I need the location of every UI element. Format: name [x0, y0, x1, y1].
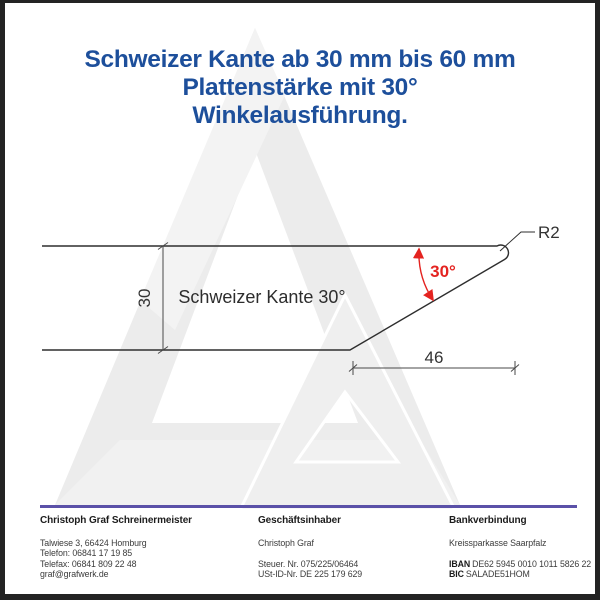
footer-bank-column: Bankverbindung Kreissparkasse Saarpfalz …: [449, 516, 599, 580]
footer-owner-heading: Geschäftsinhaber: [258, 516, 443, 527]
page-title: Schweizer Kante ab 30 mm bis 60 mm Platt…: [0, 46, 600, 130]
thickness-dim-label: 30: [135, 289, 154, 308]
title-line-2: Plattenstärke mit 30°: [0, 74, 600, 102]
footer-phone: Telefon: 06841 17 19 85: [40, 548, 245, 559]
footer-iban-line: IBANDE62 5945 0010 1011 5826 22: [449, 559, 599, 570]
title-line-3: Winkelausführung.: [0, 102, 600, 130]
title-line-1: Schweizer Kante ab 30 mm bis 60 mm: [0, 46, 600, 74]
iban-label: IBAN: [449, 559, 470, 569]
thickness-dimension: [158, 243, 168, 354]
footer-owner-name: Christoph Graf: [258, 538, 443, 549]
footer-bank-heading: Bankverbindung: [449, 516, 599, 527]
chamfer-width-dim-label: 46: [425, 348, 444, 367]
bic-value: SALADE51HOM: [466, 569, 530, 579]
footer-owner-column: Geschäftsinhaber Christoph Graf Steuer. …: [258, 516, 443, 580]
footer-company-heading: Christoph Graf Schreinermeister: [40, 516, 245, 527]
radius-leader-line: [500, 232, 535, 251]
profile-label: Schweizer Kante 30°: [178, 287, 345, 307]
footer-vat-id: USt-ID-Nr. DE 225 179 629: [258, 569, 443, 580]
footer-owner-spacer: [258, 548, 443, 559]
footer-divider-rule: [40, 505, 577, 508]
footer-bank-name: Kreissparkasse Saarpfalz: [449, 538, 599, 549]
data-sheet-page: { "title": { "line1": "Schweizer Kante a…: [0, 0, 600, 600]
footer-email: graf@grafwerk.de: [40, 569, 245, 580]
footer-bic-line: BICSALADE51HOM: [449, 569, 599, 580]
footer-address: Talwiese 3, 66424 Homburg: [40, 538, 245, 549]
footer-bank-spacer: [449, 548, 599, 559]
footer-company-column: Christoph Graf Schreinermeister Talwiese…: [40, 516, 245, 580]
footer-tax-number: Steuer. Nr. 075/225/06464: [258, 559, 443, 570]
angle-label: 30°: [430, 262, 456, 281]
iban-value: DE62 5945 0010 1011 5826 22: [472, 559, 591, 569]
bic-label: BIC: [449, 569, 464, 579]
radius-label: R2: [538, 223, 560, 242]
footer-fax: Telefax: 06841 809 22 48: [40, 559, 245, 570]
